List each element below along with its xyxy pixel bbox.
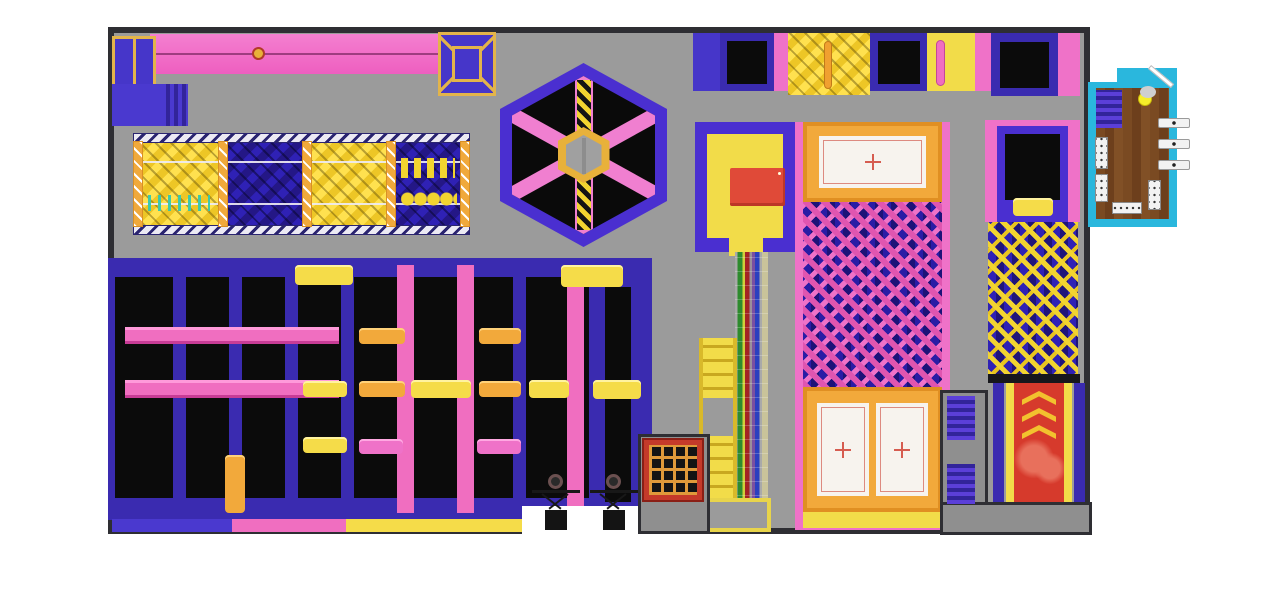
court-pad (411, 380, 471, 398)
row-yellow-mat (927, 33, 975, 91)
stand-bar (590, 490, 638, 493)
court-pad (561, 265, 623, 287)
truss-column (218, 141, 228, 227)
slide-rail-purple (1074, 383, 1085, 505)
row-pink-divider (975, 33, 991, 91)
trampoline-bed (878, 41, 920, 84)
zipline-stair-block (112, 84, 162, 126)
stand-base (545, 510, 567, 530)
truss-column (386, 141, 396, 227)
slide-base-platform (940, 502, 1092, 535)
shoe-bench (1095, 174, 1108, 202)
red-climbing-net (644, 440, 702, 500)
center-axle (582, 138, 586, 174)
slide-rail-yellow (1064, 383, 1072, 505)
frame-bar (133, 39, 136, 87)
airbag-bottom-frame (803, 387, 942, 512)
wall-trampoline-frame (991, 33, 1058, 96)
court-pad (359, 381, 405, 397)
red-slide (1014, 383, 1064, 505)
stair-steps (947, 396, 975, 440)
wheel-icon (548, 474, 563, 489)
launch-pad (1013, 198, 1053, 216)
airbag-top-frame (803, 122, 942, 202)
row-pink-divider (774, 33, 788, 91)
shoe-bench (1095, 137, 1108, 169)
pit-lip (988, 374, 1080, 383)
slide-chevron (1022, 425, 1056, 439)
reception-shelf-tab (1158, 118, 1190, 128)
zipline-track (150, 34, 438, 74)
step-discs (401, 191, 457, 207)
wall-trampoline-frame (870, 33, 927, 91)
airbag-panel (817, 403, 869, 496)
zipline-end-tower (438, 32, 496, 96)
stair-steps (947, 464, 975, 504)
red-mat (730, 168, 785, 206)
court-pad (479, 381, 521, 397)
reception-shelf-tab (1158, 160, 1190, 170)
wall-pad-yellow (346, 519, 524, 532)
wheel-stand (590, 464, 638, 534)
court-pad (359, 439, 403, 454)
launch-trampoline (1005, 134, 1060, 200)
ladder-landing (703, 398, 733, 436)
balance-beam (125, 327, 339, 344)
slide-rail-yellow (1006, 383, 1014, 505)
court-pad (529, 380, 569, 398)
foam-noodle (936, 40, 945, 86)
court-pad (593, 380, 641, 399)
zipline-stairs (162, 84, 188, 126)
zipline-pulley (252, 47, 265, 60)
hexagon-arena (512, 76, 655, 234)
foam-pit-row (133, 133, 470, 235)
zipline-start-frame (112, 36, 156, 90)
stand-base (603, 510, 625, 530)
slide-rail-purple (993, 383, 1004, 505)
foam-noodle (824, 41, 832, 89)
umbrella-canopy (1140, 86, 1156, 98)
airbag-panel (876, 403, 928, 496)
truss-column (460, 141, 470, 227)
airbag-foam-pit (795, 122, 950, 530)
trampoline-bed (1000, 42, 1049, 88)
court-pad (303, 437, 347, 453)
wheel-stand (532, 464, 580, 534)
court-pad (295, 265, 353, 285)
truss-column (133, 141, 143, 227)
foam-pit-yellow-2 (312, 143, 386, 225)
foam-cubes-blue-yellow (988, 222, 1078, 376)
zipline-cable (150, 53, 438, 55)
ninja-posts (148, 195, 210, 211)
row-purple-block (693, 33, 720, 91)
wall-trampoline-row (693, 33, 1080, 96)
court-pad (359, 328, 405, 344)
slide-chevron (1022, 408, 1056, 422)
foam-cubes-pink-blue (803, 202, 942, 387)
row-pink-divider (1058, 33, 1080, 96)
truss-column (302, 141, 312, 227)
trampoline-bed (727, 41, 767, 84)
wall-pad-pink (232, 519, 346, 532)
shoe-bench (1112, 202, 1142, 214)
court-pad (479, 328, 521, 344)
reception-mat (1096, 90, 1122, 128)
wheel-icon (606, 474, 621, 489)
wall-pad-purple (112, 519, 232, 532)
mat-dot (778, 172, 781, 175)
tower-inner (452, 46, 482, 82)
wall-trampoline-frame (720, 33, 774, 91)
stand-bar (532, 490, 580, 493)
trampoline-park-floorplan (0, 0, 1280, 597)
foam-pit-blue-1 (228, 143, 302, 225)
foam-pit-yellow-1 (143, 143, 218, 225)
court-pad (477, 439, 521, 454)
pit-edge-pad (803, 512, 942, 528)
rainbow-track (735, 252, 768, 524)
foam-pit-blue-2 (396, 143, 460, 225)
slide-chevron (1022, 391, 1056, 405)
court-pad-vertical (225, 455, 245, 513)
airbag-panel (819, 136, 926, 188)
step-bars (401, 158, 455, 178)
yellow-cube-pit (788, 33, 870, 95)
shoe-bench (1148, 180, 1161, 210)
court-pad (303, 381, 347, 397)
reception-shelf-tab (1158, 139, 1190, 149)
